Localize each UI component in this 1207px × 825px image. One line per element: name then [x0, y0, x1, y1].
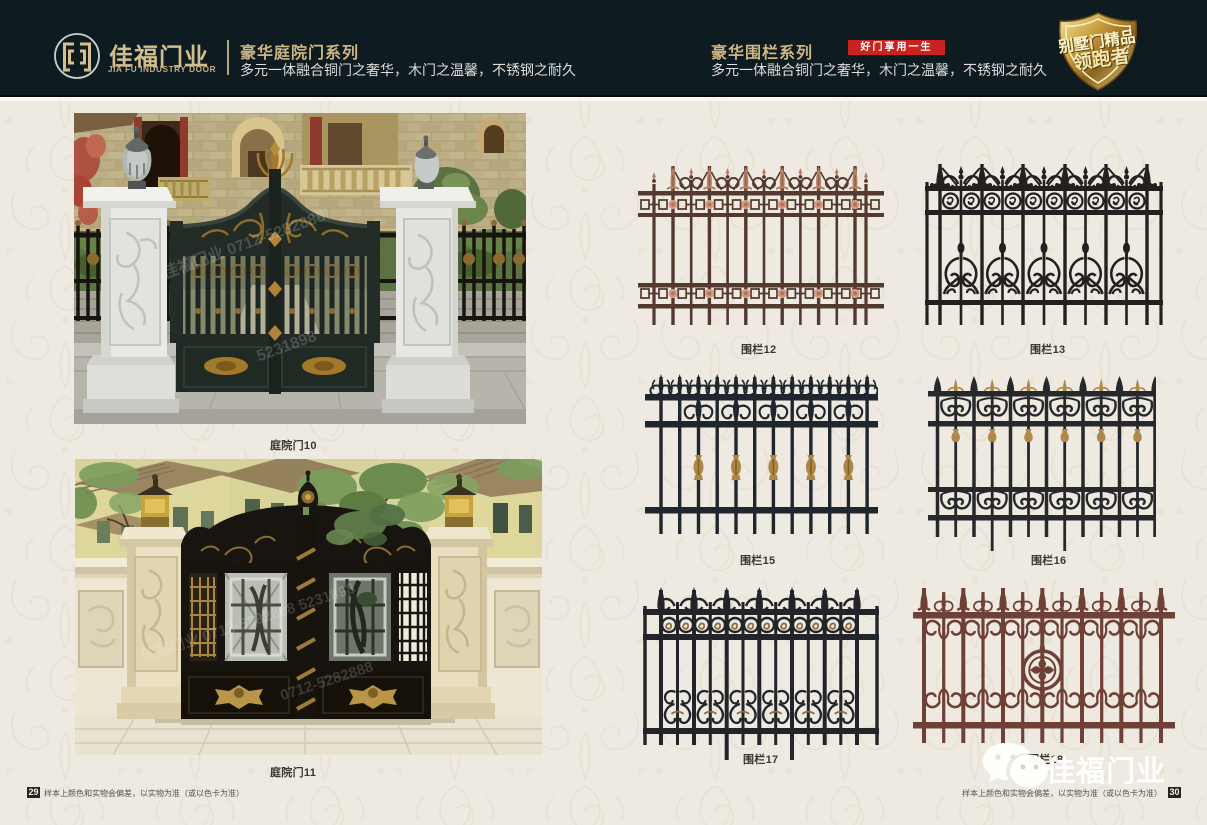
svg-text:佳福门业: 佳福门业	[1046, 755, 1166, 788]
